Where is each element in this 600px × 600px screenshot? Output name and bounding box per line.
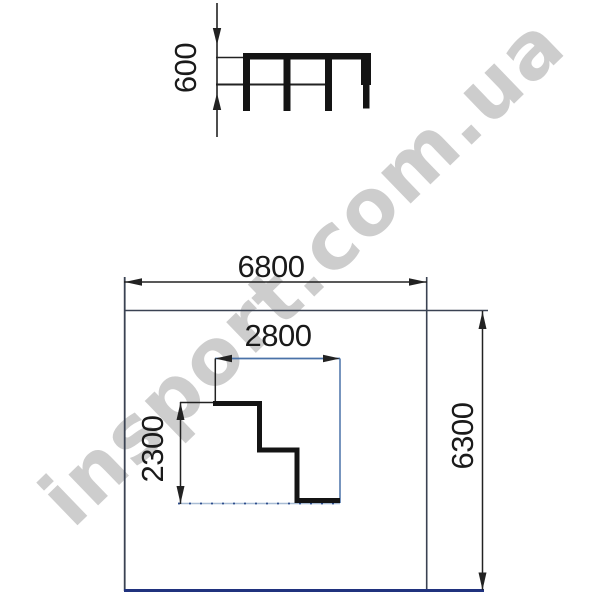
dim-6800-label: 6800 [238, 249, 305, 284]
drawing-svg: insport.com.ua 600 6800 [0, 0, 600, 600]
elevation-leg-3 [325, 59, 332, 111]
elevation-leg-1 [243, 59, 250, 111]
dim-2300-arrow-down-icon [177, 486, 185, 504]
dim-2800-label: 2800 [245, 318, 312, 353]
elevation-right-post-lower [363, 84, 370, 109]
elevation-view: 600 [168, 3, 371, 137]
elevation-top-bar [243, 53, 371, 60]
elevation-right-post-upper [361, 59, 371, 85]
technical-drawing-page: insport.com.ua 600 6800 [0, 0, 600, 600]
dim-6300-arrow-down-icon [479, 573, 487, 591]
dim-2300-label: 2300 [135, 415, 170, 482]
dim-6300-label: 6300 [445, 402, 480, 469]
dim-6800-arrow-right-icon [409, 278, 427, 286]
dim-600-label: 600 [168, 43, 203, 93]
dim-6300-arrow-up-icon [479, 312, 487, 330]
stair-steps-outline [213, 404, 340, 501]
elevation-dim-arrow-down-icon [213, 28, 221, 45]
dim-6800-arrow-left-icon [125, 278, 143, 286]
dim-2800-arrow-right-icon [323, 355, 340, 363]
elevation-dim-arrow-up-icon [213, 93, 221, 110]
elevation-leg-2 [284, 59, 291, 111]
